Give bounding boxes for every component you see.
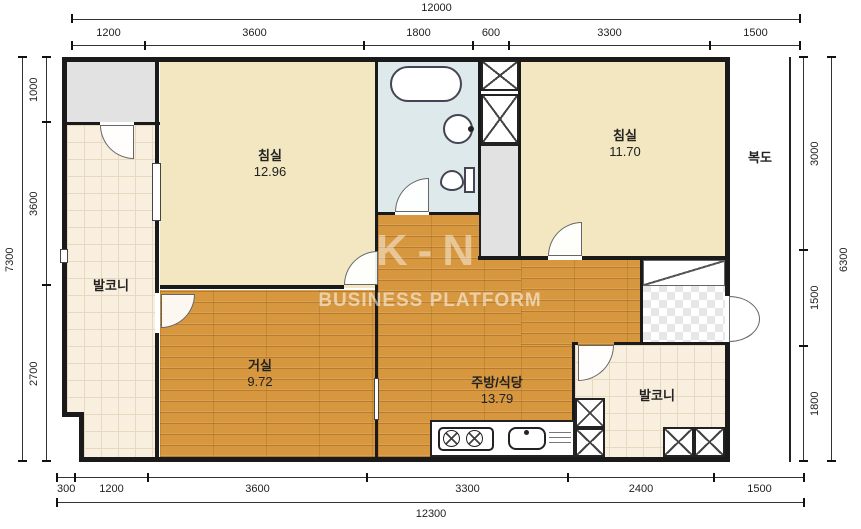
dim-tick <box>56 498 58 507</box>
window <box>152 163 161 221</box>
dim-bottom-seg-label: 1500 <box>714 483 805 495</box>
dim-left-seg-label: 1000 <box>28 57 42 122</box>
room-label-corridor: 복도 <box>731 150 789 166</box>
dim-tick <box>799 14 801 23</box>
dim-line <box>831 57 832 462</box>
room-name: 침실 <box>210 148 330 164</box>
wall <box>378 212 395 215</box>
dim-tick <box>147 473 149 482</box>
dim-left-seg-label: 3600 <box>28 122 42 285</box>
room-label-balcony-left: 발코니 <box>66 278 156 294</box>
wall <box>62 57 67 417</box>
toilet-bowl <box>440 170 464 191</box>
dim-tick <box>803 473 805 482</box>
balcony-xbox <box>575 398 605 428</box>
drain-line <box>549 437 571 438</box>
dim-tick <box>42 284 51 286</box>
brand-logo: K-N <box>300 226 560 276</box>
dim-bottom-seg-label: 2400 <box>568 483 714 495</box>
window <box>60 249 68 263</box>
dim-left-seg-label: 2700 <box>28 285 42 462</box>
wall <box>614 342 730 345</box>
room-label-living: 거실 9.72 <box>200 358 320 391</box>
dim-right-total-label: 6300 <box>838 57 852 462</box>
room-name: 거실 <box>200 358 320 374</box>
dim-top-seg-label: 1500 <box>710 27 801 39</box>
room-name: 주방/식당 <box>432 375 562 391</box>
dim-line <box>57 502 805 503</box>
dim-tick <box>827 460 836 462</box>
dim-tick <box>71 14 73 23</box>
room-label-bedroom-top-right: 침실 11.70 <box>565 128 685 161</box>
dim-tick <box>363 41 365 50</box>
dim-tick <box>799 460 808 462</box>
dim-line <box>46 57 47 462</box>
dim-tick <box>508 41 510 50</box>
wall <box>79 412 84 462</box>
dim-bottom-seg-label: 1200 <box>75 483 148 495</box>
wall <box>375 420 378 457</box>
dim-tick <box>144 41 146 50</box>
dim-tick <box>803 498 805 507</box>
entrance-door-arc <box>729 296 760 342</box>
dim-top-total-label: 12000 <box>72 2 801 14</box>
dim-tick <box>18 56 27 58</box>
stove-burner <box>466 430 483 447</box>
wall <box>725 57 730 296</box>
room-area: 9.72 <box>200 374 320 390</box>
dim-tick <box>799 345 808 347</box>
shaft-xbox <box>481 94 519 144</box>
dim-bottom-seg-label: 300 <box>57 483 75 495</box>
dim-line <box>72 45 801 46</box>
wall <box>62 122 100 125</box>
room-name: 침실 <box>565 128 685 144</box>
dim-top-seg-label: 600 <box>473 27 509 39</box>
dim-right-seg-label: 1800 <box>809 346 823 462</box>
room-label-kitchen: 주방/식당 13.79 <box>432 375 562 408</box>
dim-tick <box>799 249 808 251</box>
wall <box>155 57 159 125</box>
toilet-tank <box>464 167 475 193</box>
storage-room-floor <box>67 62 157 122</box>
shaft-xbox <box>481 60 519 91</box>
brand-watermark: BUSINESS PLATFORM <box>290 290 570 312</box>
window <box>374 378 379 420</box>
dim-tick <box>74 473 76 482</box>
dim-tick <box>366 473 368 482</box>
room-label-balcony-bottom: 발코니 <box>612 388 702 404</box>
bath-sink-dot <box>468 126 474 132</box>
dim-line <box>57 477 805 478</box>
wall <box>725 342 730 462</box>
dim-line <box>72 19 801 20</box>
drain-line <box>549 442 571 443</box>
corridor-outer-line <box>789 57 791 462</box>
balcony-xbox <box>575 428 605 457</box>
dim-bottom-seg-label: 3300 <box>367 483 568 495</box>
dim-top-seg-label: 3300 <box>509 27 710 39</box>
dim-tick <box>71 41 73 50</box>
dim-line <box>22 57 23 462</box>
drain-line <box>549 432 571 433</box>
dim-tick <box>18 460 27 462</box>
room-area: 13.79 <box>432 391 562 407</box>
dim-line <box>803 57 804 462</box>
dim-tick <box>56 473 58 482</box>
room-area: 12.96 <box>210 164 330 180</box>
dim-tick <box>827 56 836 58</box>
room-area: 11.70 <box>565 144 685 160</box>
bathtub <box>390 66 462 102</box>
shoe-cabinet <box>643 260 725 286</box>
dim-tick <box>799 41 801 50</box>
dim-tick <box>567 473 569 482</box>
dim-left-total-label: 7300 <box>4 57 18 462</box>
room-label-bedroom-top-left: 침실 12.96 <box>210 148 330 181</box>
wall <box>429 212 481 215</box>
balcony-xbox <box>663 427 694 457</box>
wall-notch-cover <box>62 417 79 462</box>
dim-tick <box>42 56 51 58</box>
dim-tick <box>713 473 715 482</box>
dim-tick <box>42 121 51 123</box>
stove-burner <box>443 430 460 447</box>
dim-tick <box>42 460 51 462</box>
dim-tick <box>799 56 808 58</box>
dim-tick <box>472 41 474 50</box>
dim-tick <box>709 41 711 50</box>
balcony-xbox <box>694 427 725 457</box>
dim-top-seg-label: 1200 <box>72 27 145 39</box>
wall <box>79 457 730 462</box>
wall <box>62 57 730 62</box>
dim-top-seg-label: 3600 <box>145 27 364 39</box>
dim-top-seg-label: 1800 <box>364 27 473 39</box>
dim-right-seg-label: 1500 <box>809 250 823 346</box>
kitchen-sink-dot <box>524 430 529 435</box>
wall <box>155 333 159 457</box>
dim-bottom-seg-label: 3600 <box>148 483 367 495</box>
wall <box>160 285 344 289</box>
dim-right-seg-label: 3000 <box>809 57 823 250</box>
dim-bottom-total-label: 12300 <box>57 508 805 520</box>
